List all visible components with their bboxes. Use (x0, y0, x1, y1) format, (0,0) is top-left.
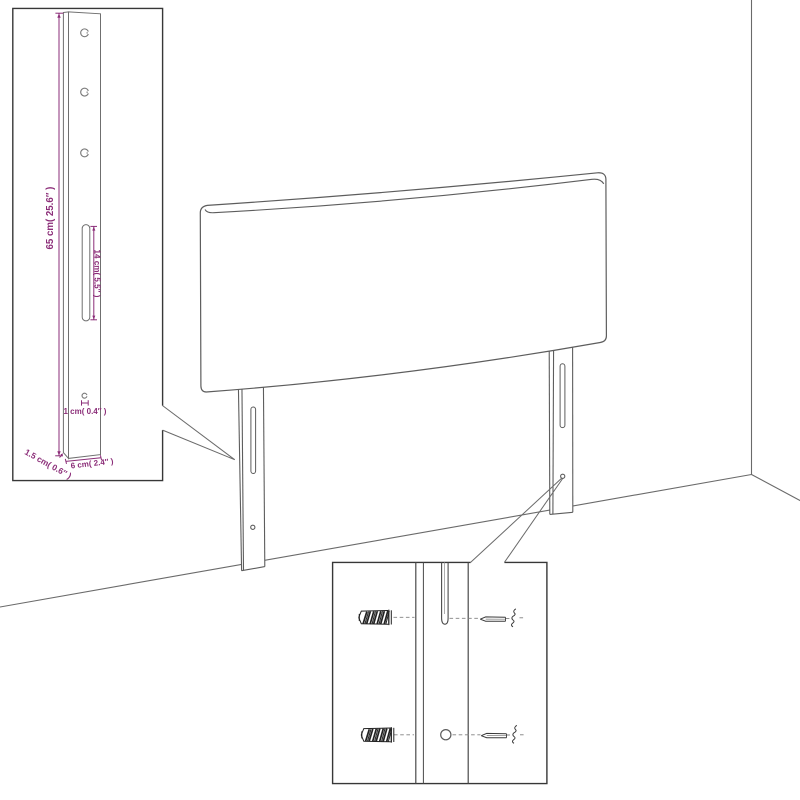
svg-text:14 cm( 5.5″ ): 14 cm( 5.5″ ) (92, 250, 101, 298)
svg-text:65 cm( 25.6″ ): 65 cm( 25.6″ ) (45, 187, 56, 250)
svg-text:1 cm( 0.4″ ): 1 cm( 0.4″ ) (64, 407, 107, 416)
